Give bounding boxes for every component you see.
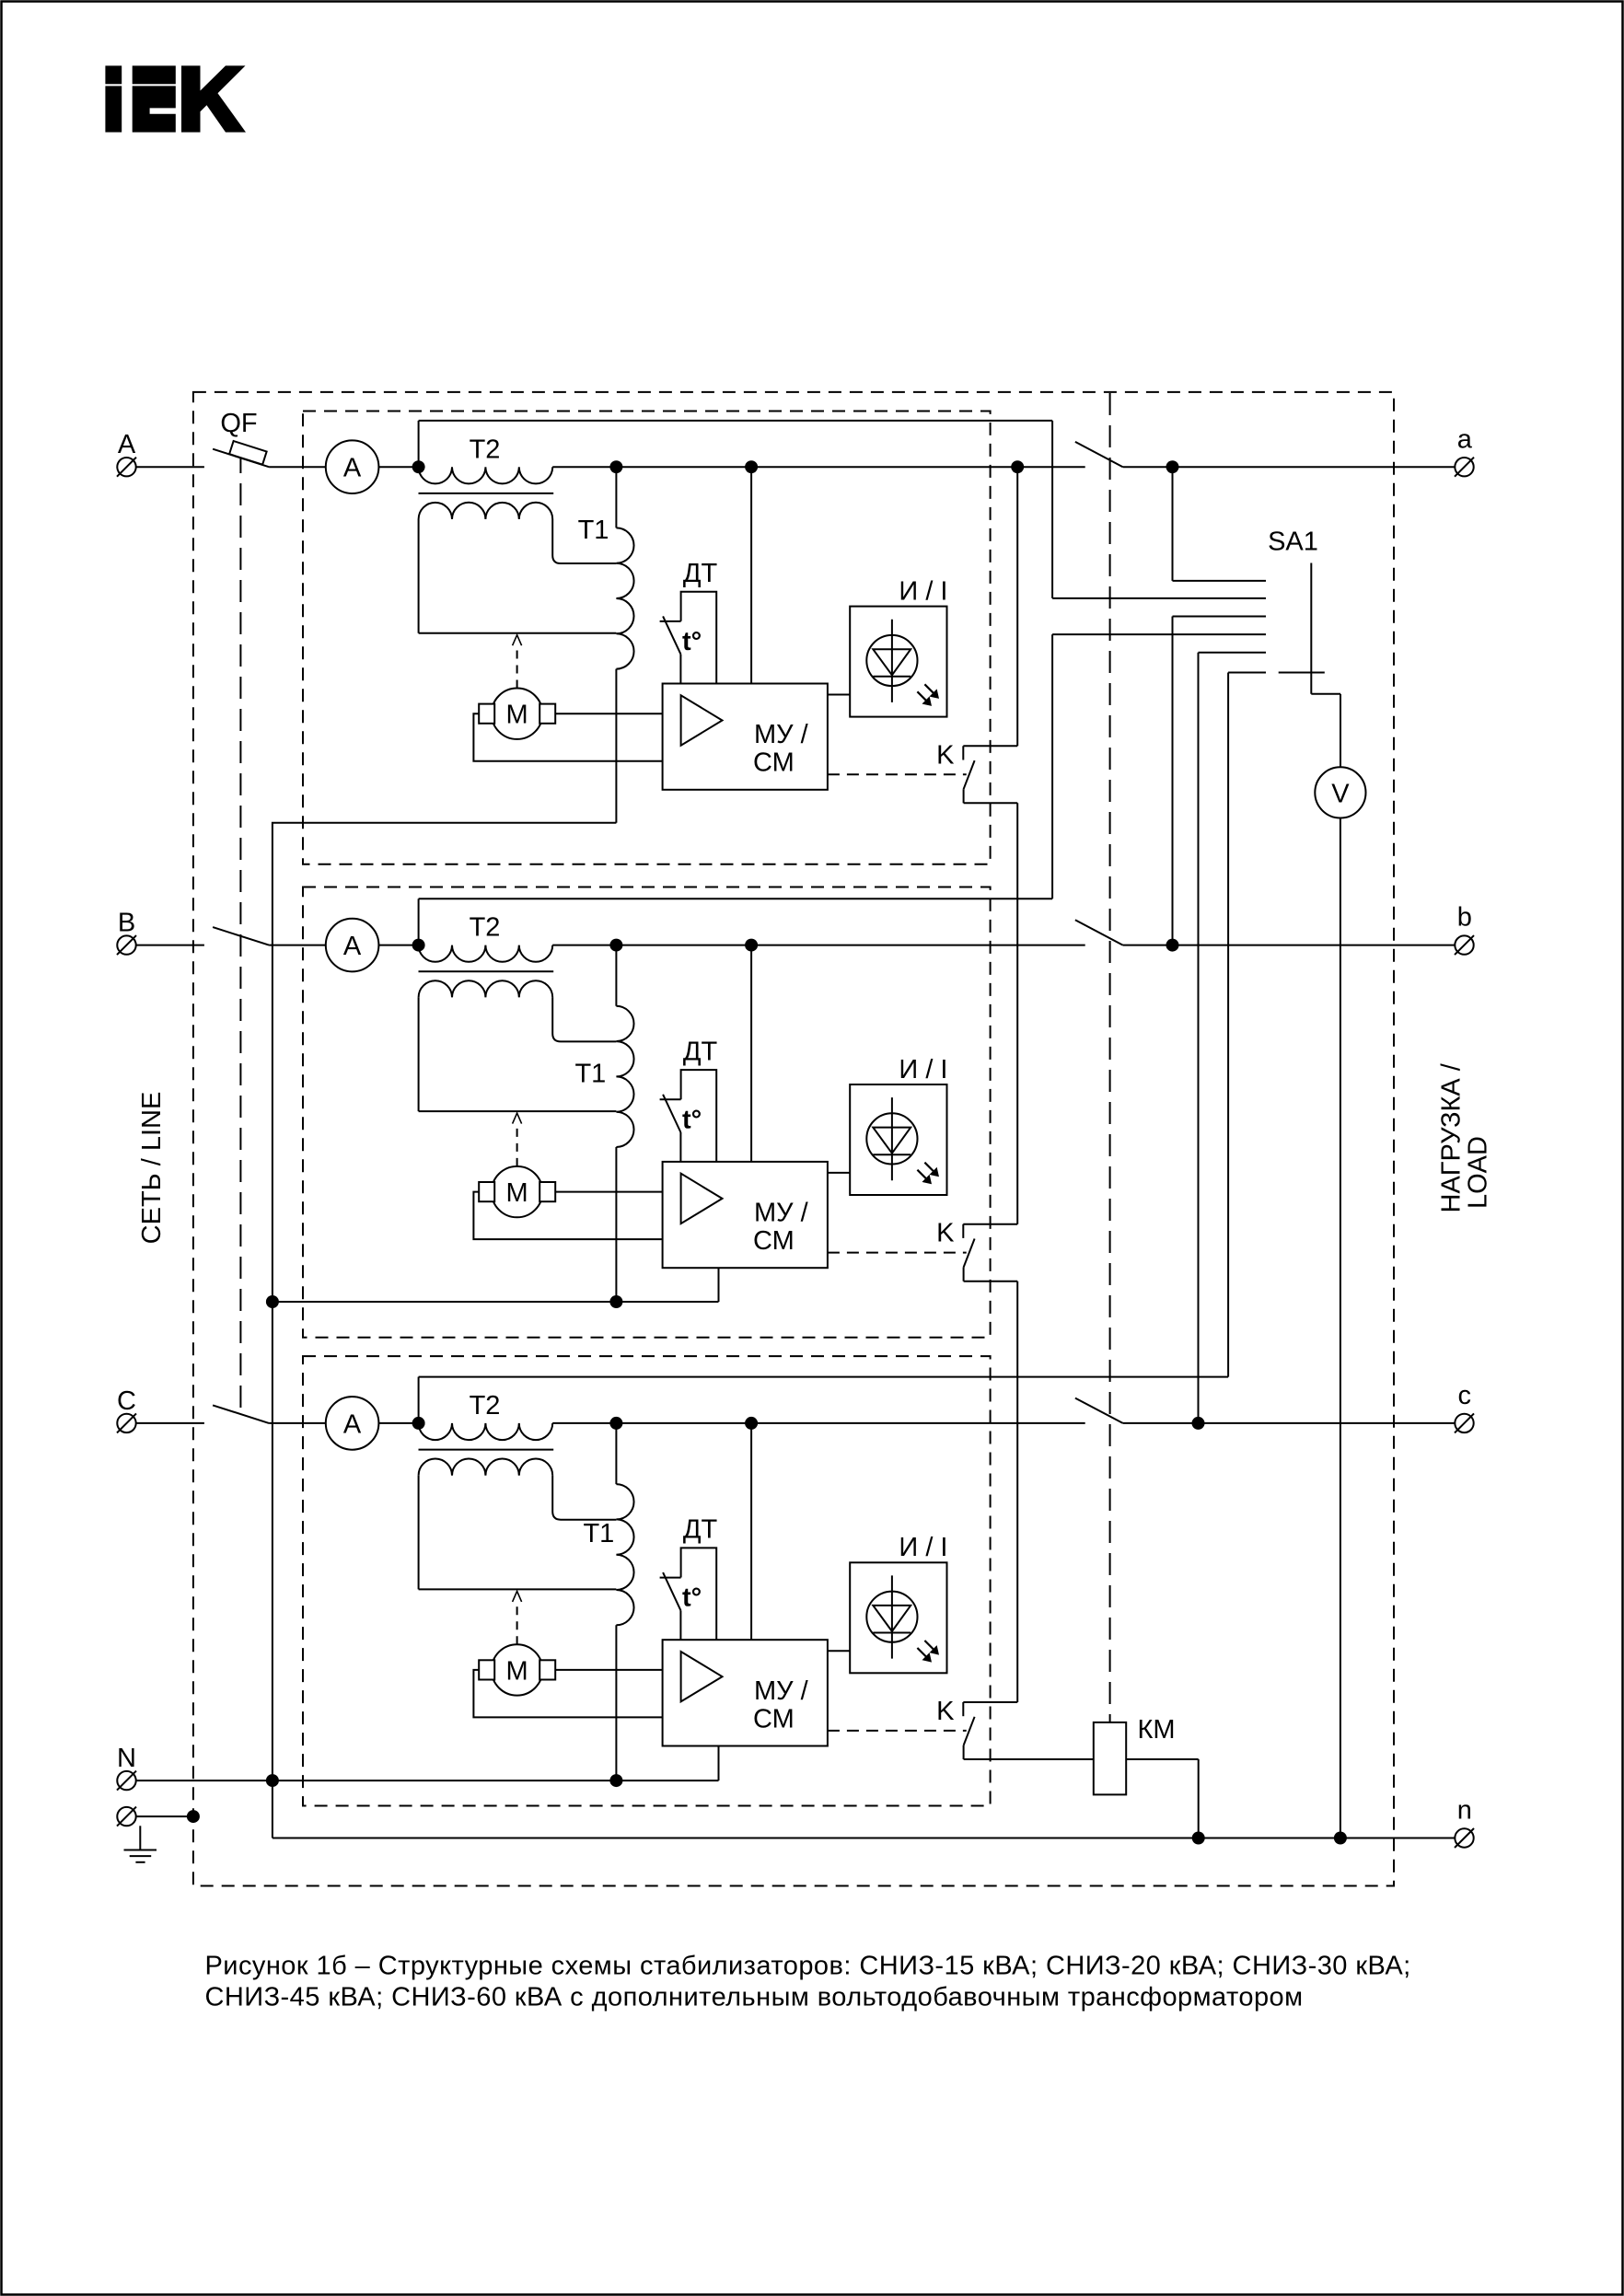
svg-text:C: C <box>117 1386 136 1416</box>
svg-text:a: a <box>1457 424 1473 454</box>
svg-text:М: М <box>506 1656 528 1686</box>
svg-text:A: A <box>343 1409 362 1439</box>
svg-text:A: A <box>118 430 136 459</box>
svg-text:K: K <box>936 1697 955 1726</box>
svg-text:LOAD: LOAD <box>1463 1136 1492 1209</box>
svg-text:t°: t° <box>682 627 702 656</box>
svg-text:И / I: И / I <box>899 1533 947 1562</box>
svg-text:B: B <box>118 909 135 938</box>
svg-text:МУ /: МУ / <box>754 720 809 749</box>
svg-text:МУ /: МУ / <box>754 1676 809 1706</box>
svg-text:М: М <box>506 701 528 730</box>
svg-text:СМ: СМ <box>753 1704 795 1734</box>
svg-text:V: V <box>1331 779 1350 808</box>
svg-text:K: K <box>936 1219 955 1248</box>
svg-text:СМ: СМ <box>753 1226 795 1256</box>
svg-text:QF: QF <box>220 409 257 438</box>
svg-text:М: М <box>506 1178 528 1208</box>
svg-text:Рисунок 1б – Структурные схем: Рисунок 1б – Структурные схемы стабилиза… <box>205 1951 1411 1980</box>
svg-text:МУ /: МУ / <box>754 1199 809 1228</box>
svg-text:ДТ: ДТ <box>683 1515 718 1545</box>
svg-text:СНИЗ-45 кВА; СНИЗ-60 кВА с доп: СНИЗ-45 кВА; СНИЗ-60 кВА с дополнительны… <box>205 1983 1304 2012</box>
svg-text:T1: T1 <box>583 1519 614 1548</box>
svg-text:НАГРУЗКА /: НАГРУЗКА / <box>1437 1062 1467 1212</box>
svg-text:T1: T1 <box>578 516 609 545</box>
svg-text:T2: T2 <box>470 913 501 943</box>
svg-text:СМ: СМ <box>753 748 795 778</box>
svg-text:ДТ: ДТ <box>683 1037 718 1066</box>
svg-text:ДТ: ДТ <box>683 559 718 588</box>
svg-text:КМ: КМ <box>1138 1715 1176 1745</box>
svg-text:T1: T1 <box>574 1059 606 1088</box>
svg-text:T2: T2 <box>470 1391 501 1421</box>
svg-text:c: c <box>1458 1381 1472 1410</box>
svg-text:A: A <box>343 454 362 483</box>
svg-text:И / I: И / I <box>899 1055 947 1084</box>
svg-text:K: K <box>936 740 955 770</box>
svg-text:SA1: SA1 <box>1268 528 1318 557</box>
svg-text:t°: t° <box>682 1583 702 1613</box>
svg-text:t°: t° <box>682 1105 702 1134</box>
svg-text:T2: T2 <box>470 435 501 464</box>
svg-text:b: b <box>1457 903 1472 933</box>
svg-text:N: N <box>117 1744 136 1773</box>
svg-text:СЕТЬ / LINE: СЕТЬ / LINE <box>137 1092 167 1245</box>
svg-text:A: A <box>343 932 362 961</box>
svg-text:И / I: И / I <box>899 577 947 607</box>
svg-text:n: n <box>1457 1796 1472 1826</box>
